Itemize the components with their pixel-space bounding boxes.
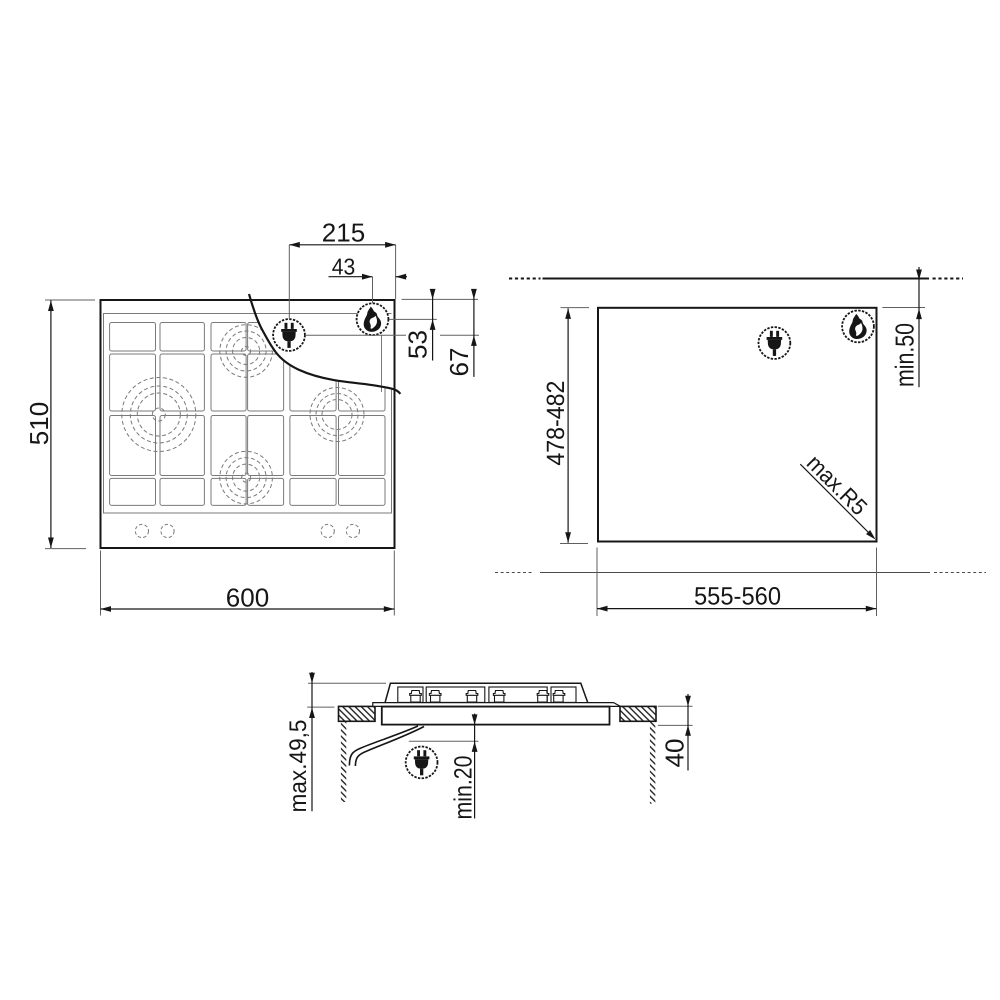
svg-text:478-482: 478-482 [542, 381, 570, 466]
svg-text:555-560: 555-560 [694, 583, 781, 611]
svg-text:53: 53 [402, 330, 432, 359]
svg-text:510: 510 [24, 402, 54, 445]
svg-text:600: 600 [226, 583, 269, 613]
svg-text:max.49,5: max.49,5 [285, 720, 312, 813]
svg-text:43: 43 [332, 254, 356, 280]
svg-text:40: 40 [659, 739, 689, 768]
svg-text:67: 67 [444, 348, 474, 377]
svg-text:min.20: min.20 [450, 756, 478, 820]
svg-text:215: 215 [322, 218, 365, 248]
svg-text:min.50: min.50 [890, 323, 920, 387]
